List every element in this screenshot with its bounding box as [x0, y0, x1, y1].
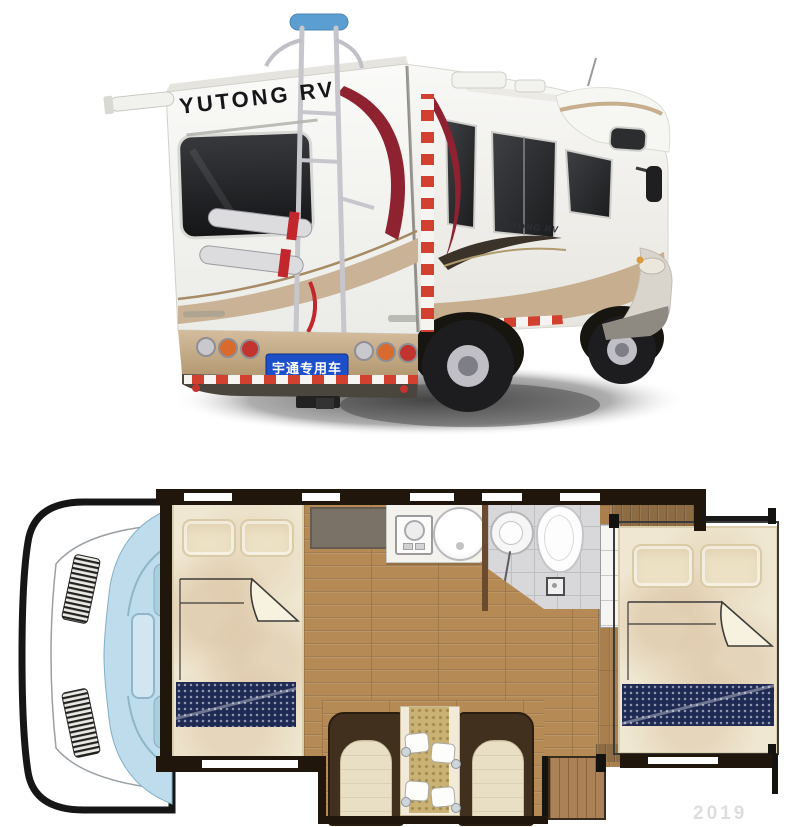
wall-top [156, 489, 702, 505]
wall-post [609, 514, 619, 528]
cup [401, 797, 411, 807]
bench-cushion [340, 740, 392, 820]
wall-bottom-left [156, 756, 324, 772]
wall-post [772, 754, 778, 794]
composite-image: YUTONG RV YUTONG RV 宇通专用车 [0, 0, 790, 827]
cup [451, 803, 461, 813]
basin-bowl [499, 521, 523, 545]
dinette-bench-left [328, 712, 404, 826]
slideout-rail-top [702, 516, 774, 521]
front-bed [172, 503, 304, 763]
floorplan: 2019 [0, 0, 790, 827]
floor-drain [546, 577, 565, 596]
bathroom-wall-left [482, 503, 488, 611]
wall-post [596, 754, 606, 772]
bench-cushion [472, 740, 524, 820]
watermark: 2019 [693, 803, 747, 825]
dining-table [400, 706, 460, 816]
door-jamb [542, 756, 548, 820]
stove-knob [403, 543, 413, 550]
driver-cab [14, 494, 176, 820]
wall-post [768, 508, 776, 524]
wall-post-topright [694, 489, 706, 531]
stove-burner [404, 520, 425, 541]
toilet-bowl [544, 515, 574, 561]
sink-drain [456, 542, 464, 550]
front-bed-runner [176, 682, 296, 727]
kitchen-sink [433, 507, 487, 561]
dinette-bench-right [458, 712, 534, 826]
cup [451, 759, 461, 769]
wall-dinette-bottom [318, 816, 548, 824]
wash-basin [490, 511, 534, 555]
cup [401, 747, 411, 757]
kitchen-counter [386, 503, 488, 563]
wall-bottom-right [620, 754, 778, 768]
rear-bed-slideout-frame [613, 521, 779, 755]
stove-knob [415, 543, 425, 550]
gas-stove [395, 515, 433, 555]
wall-left [160, 489, 172, 772]
entry-mat [310, 507, 388, 549]
toilet [536, 505, 584, 573]
wall-dinette-left [318, 756, 326, 822]
